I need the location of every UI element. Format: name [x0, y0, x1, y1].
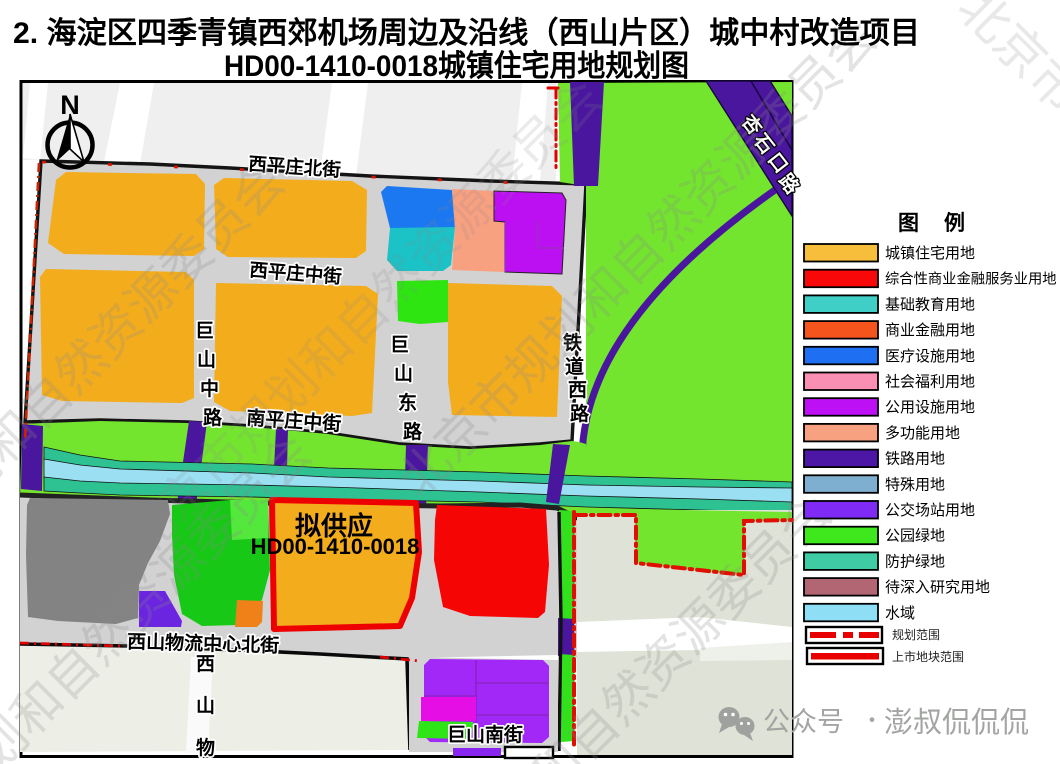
svg-text:特殊用地: 特殊用地	[885, 476, 945, 493]
svg-text:上市地块范围: 上市地块范围	[892, 649, 964, 664]
svg-text:公众号: 公众号	[763, 707, 844, 737]
svg-text:巨: 巨	[195, 321, 214, 342]
svg-text:社会福利用地: 社会福利用地	[885, 374, 975, 391]
svg-text:规划范围: 规划范围	[892, 627, 940, 642]
svg-text:东: 东	[398, 391, 417, 414]
svg-text:HD00-1410-0018: HD00-1410-0018	[251, 534, 420, 559]
svg-text:医疗设施用地: 医疗设施用地	[885, 348, 975, 365]
svg-text:公园绿地: 公园绿地	[885, 528, 945, 545]
svg-text:中: 中	[200, 377, 219, 400]
svg-text:巨山南街: 巨山南街	[447, 723, 523, 746]
svg-text:澎叔侃侃侃: 澎叔侃侃侃	[884, 706, 1029, 739]
svg-text:待深入研究用地: 待深入研究用地	[885, 579, 990, 596]
svg-text:山: 山	[197, 349, 216, 371]
svg-text:・: ・	[861, 708, 883, 733]
svg-text:山: 山	[196, 695, 215, 717]
svg-text:2. 海淀区四季青镇西郊机场周边及沿线（西山片区）城中村改造: 2. 海淀区四季青镇西郊机场周边及沿线（西山片区）城中村改造项目	[13, 16, 920, 50]
svg-text:巨: 巨	[390, 335, 409, 356]
svg-text:公交场站用地: 公交场站用地	[885, 501, 975, 519]
svg-text:山: 山	[394, 363, 413, 385]
svg-text:西: 西	[196, 654, 215, 675]
svg-text:西: 西	[568, 380, 587, 401]
svg-text:水域: 水域	[885, 605, 915, 622]
svg-text:城镇住宅用地: 城镇住宅用地	[885, 245, 975, 262]
svg-text:铁路用地: 铁路用地	[885, 451, 945, 468]
svg-text:基础教育用地: 基础教育用地	[885, 296, 975, 313]
svg-text:HD00-1410-0018城镇住宅用地规划图: HD00-1410-0018城镇住宅用地规划图	[224, 49, 689, 83]
svg-text:多功能用地: 多功能用地	[885, 425, 960, 442]
svg-text:N: N	[60, 90, 80, 120]
svg-text:公用设施用地: 公用设施用地	[885, 399, 975, 416]
svg-text:综合性商业金融服务业用地: 综合性商业金融服务业用地	[885, 271, 1057, 288]
svg-text:物: 物	[196, 736, 215, 759]
svg-text:图 例: 图 例	[898, 211, 965, 235]
svg-text:商业金融用地: 商业金融用地	[885, 322, 975, 339]
svg-text:路: 路	[570, 402, 590, 425]
svg-text:防护绿地: 防护绿地	[885, 553, 945, 570]
